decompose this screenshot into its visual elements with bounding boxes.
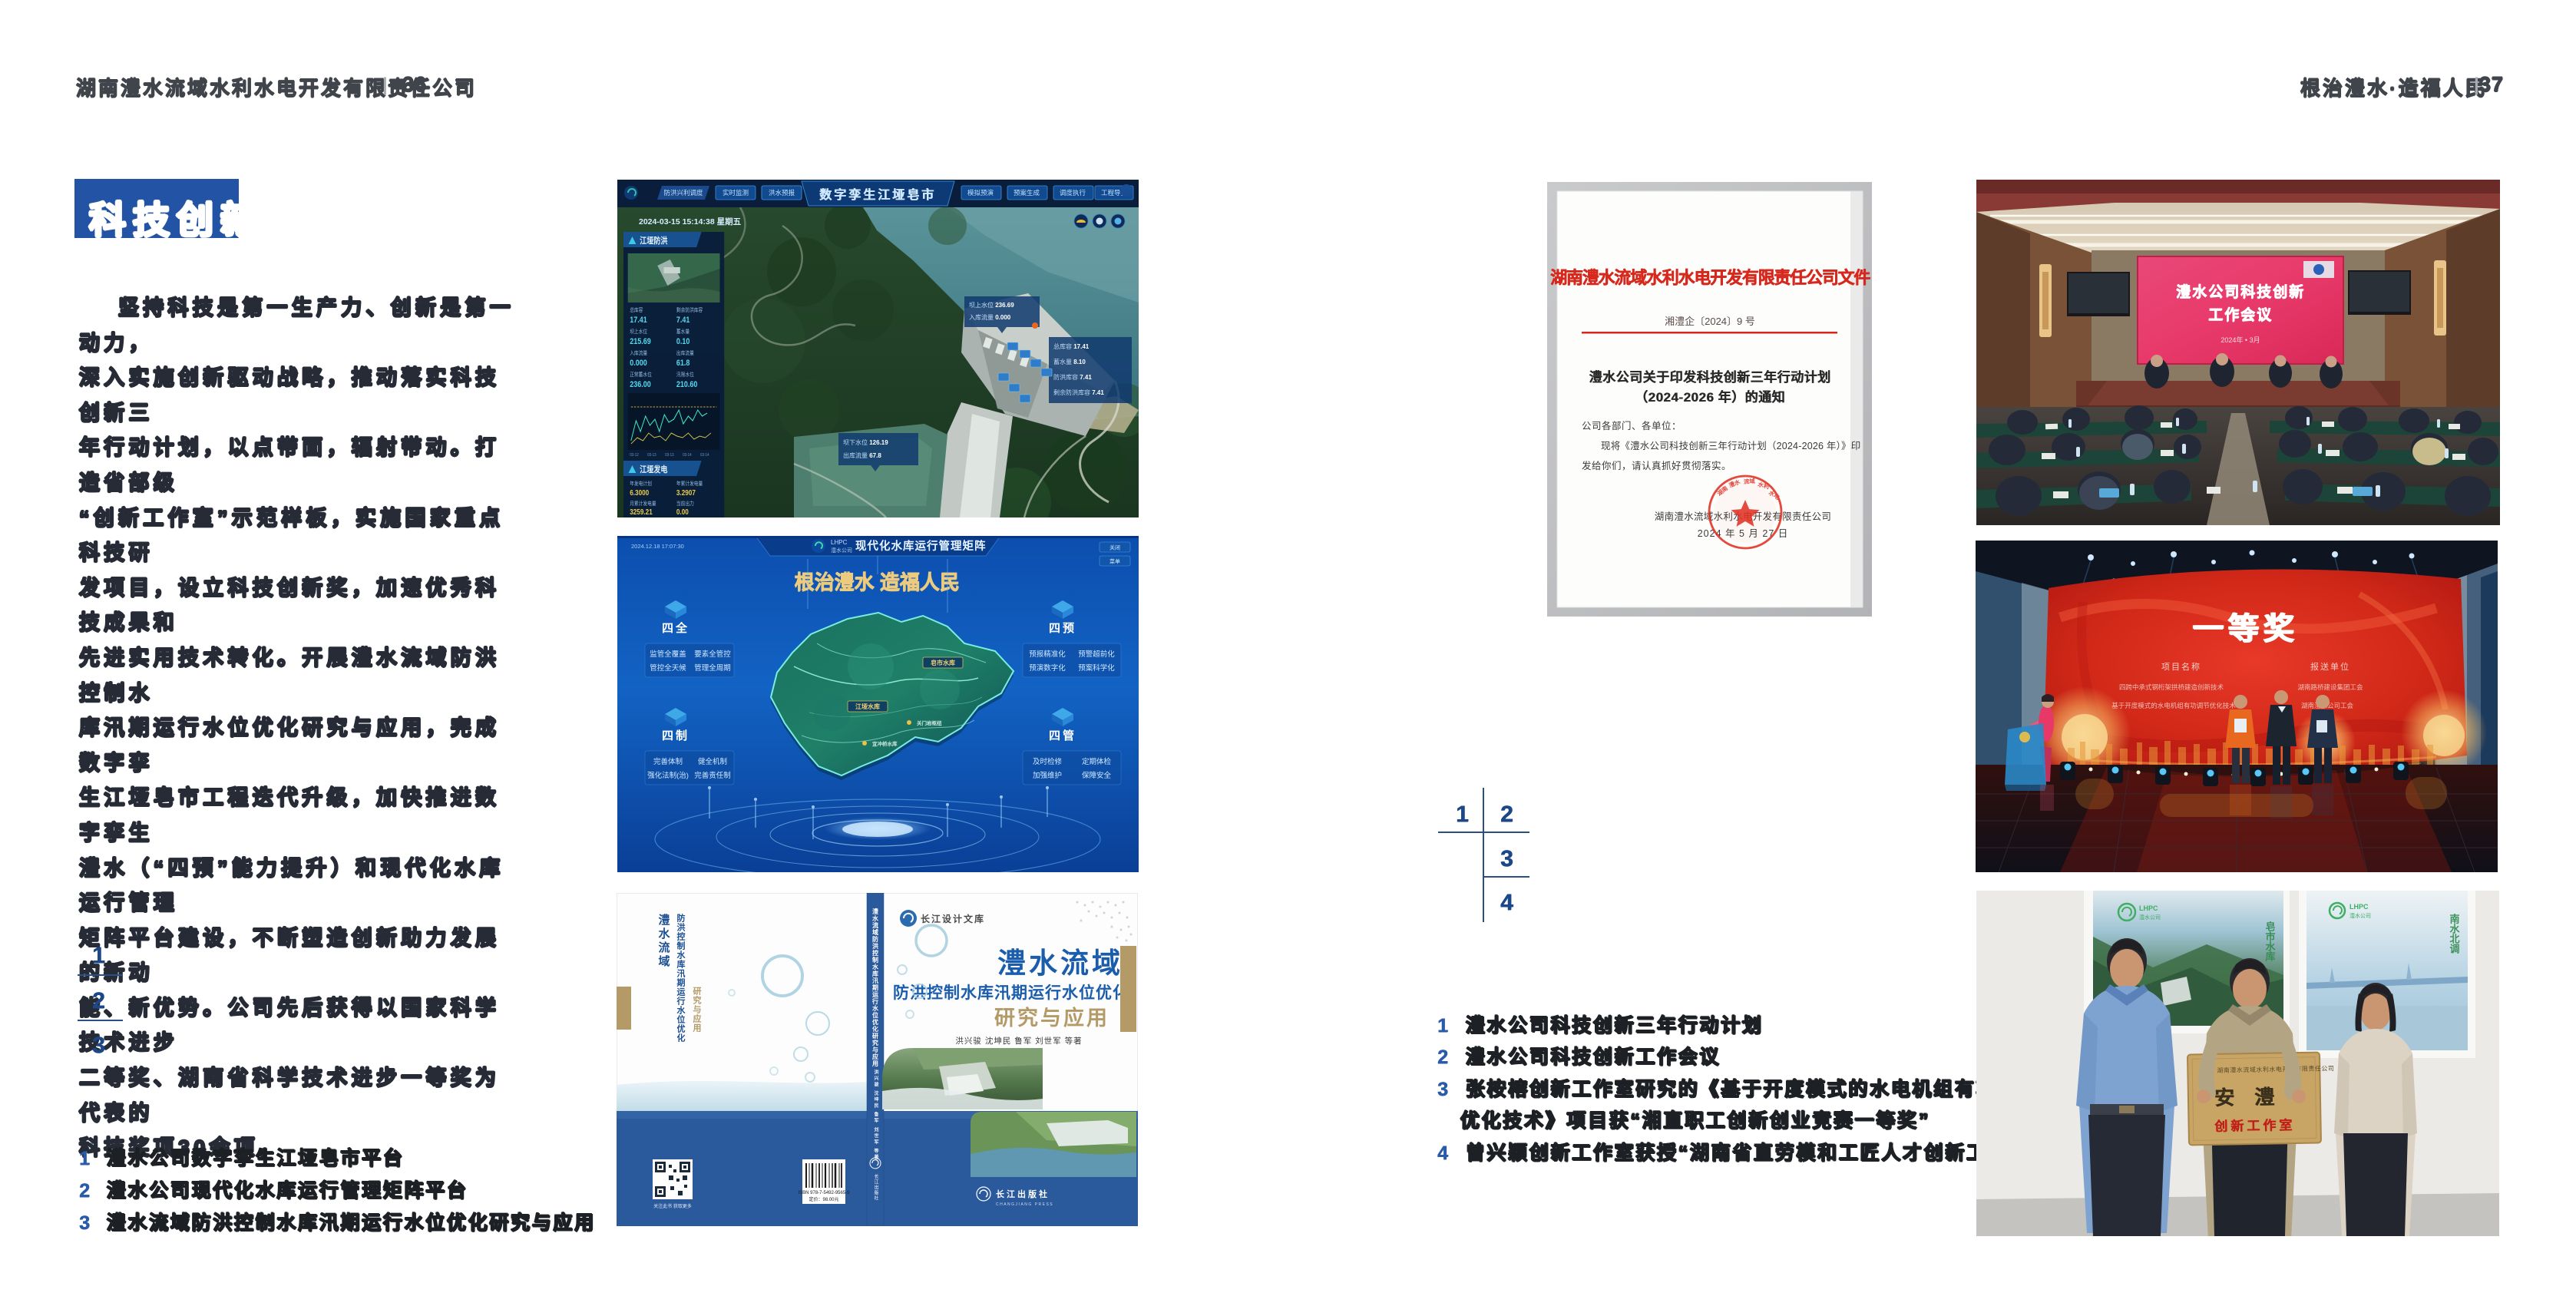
svg-text:03-13: 03-13 xyxy=(647,453,656,458)
svg-text:江垭水库: 江垭水库 xyxy=(855,703,880,710)
svg-text:研究与应用: 研究与应用 xyxy=(994,1006,1109,1030)
svg-text:预警超前化: 预警超前化 xyxy=(1078,650,1115,659)
svg-text:预演数字化: 预演数字化 xyxy=(1029,663,1066,673)
svg-text:蓄水量: 蓄水量 xyxy=(676,327,690,335)
svg-text:预案生成: 预案生成 xyxy=(1014,189,1040,197)
svg-text:澧水公司: 澧水公司 xyxy=(831,547,852,554)
svg-text:防洪控制水库汛期运行水位优化: 防洪控制水库汛期运行水位优化 xyxy=(893,984,1129,1002)
svg-text:坝上水位: 坝上水位 xyxy=(630,327,647,335)
svg-text:皂市水库: 皂市水库 xyxy=(2264,921,2276,962)
svg-text:防洪库容 7.41: 防洪库容 7.41 xyxy=(1053,373,1092,381)
svg-text:工作会议: 工作会议 xyxy=(2208,306,2273,323)
svg-text:月累计发电量: 月累计发电量 xyxy=(630,499,656,507)
svg-text:定价：98.00元: 定价：98.00元 xyxy=(809,1196,838,1202)
svg-text:创新工作室: 创新工作室 xyxy=(2214,1117,2295,1134)
svg-text:防洪兴利调度: 防洪兴利调度 xyxy=(663,189,703,197)
svg-text:四管: 四管 xyxy=(1049,729,1076,742)
svg-text:及时检修: 及时检修 xyxy=(1033,757,1063,766)
svg-text:基于开度模式的水电机组有功调节优化技术: 基于开度模式的水电机组有功调节优化技术 xyxy=(2111,702,2236,709)
svg-text:坝下水位 126.19: 坝下水位 126.19 xyxy=(843,438,888,446)
svg-text:防洪控制水库汛期运行水位优化: 防洪控制水库汛期运行水位优化 xyxy=(676,913,686,1043)
svg-text:安澧: 安澧 xyxy=(2214,1085,2295,1109)
svg-text:LHPC: LHPC xyxy=(2349,903,2369,911)
svg-text:湖南澧水流域水利水电开发有限责任公司文件: 湖南澧水流域水利水电开发有限责任公司文件 xyxy=(1550,268,1870,287)
svg-text:四全: 四全 xyxy=(662,621,689,635)
svg-text:现代化水库运行管理矩阵: 现代化水库运行管理矩阵 xyxy=(855,539,987,553)
svg-text:出库流量 67.8: 出库流量 67.8 xyxy=(843,451,881,459)
svg-text:公司各部门、各单位：: 公司各部门、各单位： xyxy=(1582,420,1682,431)
svg-text:ISBN 978-7-5492-9565-9: ISBN 978-7-5492-9565-9 xyxy=(798,1191,850,1195)
svg-text:61.8: 61.8 xyxy=(676,359,690,368)
svg-text:实时监测: 实时监测 xyxy=(723,189,749,197)
svg-text:03-12: 03-12 xyxy=(630,453,639,458)
svg-text:0.10: 0.10 xyxy=(676,337,690,346)
svg-text:菜单: 菜单 xyxy=(1109,558,1120,565)
svg-text:健全机制: 健全机制 xyxy=(698,757,727,766)
svg-text:澧水公司科技创新: 澧水公司科技创新 xyxy=(2176,283,2305,300)
svg-text:LHPC: LHPC xyxy=(2139,904,2158,912)
svg-text:江垭防洪: 江垭防洪 xyxy=(640,235,667,246)
svg-text:澧水公司关于印发科技创新三年行动计划: 澧水公司关于印发科技创新三年行动计划 xyxy=(1589,369,1831,385)
svg-text:剩余防洪库容 7.41: 剩余防洪库容 7.41 xyxy=(1053,388,1104,396)
svg-text:定期体检: 定期体检 xyxy=(1082,757,1112,766)
svg-text:根治澧水 造福人民: 根治澧水 造福人民 xyxy=(794,570,959,593)
svg-text:215.69: 215.69 xyxy=(630,337,651,346)
svg-text:03-13: 03-13 xyxy=(665,453,674,458)
svg-text:关注此书 获取更多: 关注此书 获取更多 xyxy=(653,1203,692,1209)
svg-text:澧水流域: 澧水流域 xyxy=(997,947,1123,979)
svg-text:入库流量: 入库流量 xyxy=(630,349,647,356)
svg-text:入库流量 0.000: 入库流量 0.000 xyxy=(969,313,1011,321)
svg-text:湘澧企〔2024〕9 号: 湘澧企〔2024〕9 号 xyxy=(1665,316,1755,327)
svg-text:监管全覆盖: 监管全覆盖 xyxy=(650,650,686,659)
svg-text:保障安全: 保障安全 xyxy=(1082,771,1112,780)
svg-text:现将《澧水公司科技创新三年行动计划（2024-2026 年）: 现将《澧水公司科技创新三年行动计划（2024-2026 年）》印 xyxy=(1601,440,1860,451)
svg-text:2024年 • 3月: 2024年 • 3月 xyxy=(2221,336,2260,344)
svg-text:皂市水库: 皂市水库 xyxy=(931,659,955,666)
svg-text:湖南路桥建设集团工会: 湖南路桥建设集团工会 xyxy=(2297,683,2363,691)
svg-text:（2024-2026 年）的通知: （2024-2026 年）的通知 xyxy=(1635,389,1785,405)
svg-text:四预: 四预 xyxy=(1049,622,1076,635)
svg-text:关闭: 关闭 xyxy=(1109,544,1120,551)
svg-text:宜冲桥水库: 宜冲桥水库 xyxy=(872,740,898,747)
svg-text:江垭发电: 江垭发电 xyxy=(640,464,667,474)
svg-text:加强维护: 加强维护 xyxy=(1033,771,1062,780)
svg-text:预案科学化: 预案科学化 xyxy=(1078,663,1115,673)
svg-text:完善责任制: 完善责任制 xyxy=(694,771,731,780)
svg-text:模拟预演: 模拟预演 xyxy=(967,189,994,197)
svg-text:坝上水位 236.69: 坝上水位 236.69 xyxy=(969,301,1014,309)
svg-text:强化法制(治): 强化法制(治) xyxy=(647,771,689,780)
svg-text:数字孪生江垭皂市: 数字孪生江垭皂市 xyxy=(819,187,936,202)
svg-text:0.000: 0.000 xyxy=(630,359,647,368)
svg-text:剩余防洪库容: 剩余防洪库容 xyxy=(676,306,703,313)
svg-text:LHPC: LHPC xyxy=(831,539,848,546)
svg-text:研究与应用: 研究与应用 xyxy=(692,987,702,1033)
svg-text:洪兴骏 沈坤民 鲁军 刘世军 等著: 洪兴骏 沈坤民 鲁军 刘世军 等著 xyxy=(955,1036,1082,1046)
svg-text:长江出版社: 长江出版社 xyxy=(873,1173,878,1201)
svg-text:项目名称: 项目名称 xyxy=(2161,661,2201,672)
svg-text:6.3000: 6.3000 xyxy=(630,488,649,497)
svg-text:出库流量: 出库流量 xyxy=(676,349,694,356)
svg-text:四跨中承式钢桁架拱桥建造创新技术: 四跨中承式钢桁架拱桥建造创新技术 xyxy=(2119,683,2224,691)
svg-text:发给你们，请认真抓好贯彻落实。: 发给你们，请认真抓好贯彻落实。 xyxy=(1582,460,1731,471)
svg-text:完善体制: 完善体制 xyxy=(653,757,683,766)
svg-text:澧水流域防洪控制水库汛期运行水位优化研究与应用: 澧水流域防洪控制水库汛期运行水位优化研究与应用 xyxy=(871,908,879,1067)
svg-text:要素全管控: 要素全管控 xyxy=(694,650,731,659)
svg-text:澧水流域: 澧水流域 xyxy=(657,913,670,969)
svg-text:当前出力: 当前出力 xyxy=(676,499,694,507)
svg-text:四制: 四制 xyxy=(662,729,689,742)
svg-text:关门岩枢纽: 关门岩枢纽 xyxy=(917,719,942,726)
svg-text:南水北调: 南水北调 xyxy=(2449,913,2460,954)
svg-text:210.60: 210.60 xyxy=(676,380,698,389)
svg-text:年发电计划: 年发电计划 xyxy=(630,479,652,487)
svg-text:7.41: 7.41 xyxy=(676,316,690,325)
svg-text:蓄水量 8.10: 蓄水量 8.10 xyxy=(1053,358,1086,365)
svg-text:调度执行: 调度执行 xyxy=(1060,189,1086,197)
svg-text:236.00: 236.00 xyxy=(630,380,651,389)
svg-text:长江设计文库: 长江设计文库 xyxy=(921,913,985,924)
svg-text:管理全周期: 管理全周期 xyxy=(694,663,731,673)
svg-text:3259.21: 3259.21 xyxy=(630,508,653,516)
svg-text:报送单位: 报送单位 xyxy=(2310,661,2350,672)
svg-text:2024-03-15 15:14:38 星期五: 2024-03-15 15:14:38 星期五 xyxy=(639,217,742,226)
svg-text:17.41: 17.41 xyxy=(630,316,647,325)
svg-text:3.2907: 3.2907 xyxy=(676,488,696,497)
svg-text:长江出版社: 长江出版社 xyxy=(996,1189,1050,1199)
svg-text:澧水公司: 澧水公司 xyxy=(2139,914,2161,921)
svg-text:管控全天候: 管控全天候 xyxy=(650,663,686,673)
svg-text:汛限水位: 汛限水位 xyxy=(676,370,694,378)
svg-text:CHANGJIANG PRESS: CHANGJIANG PRESS xyxy=(996,1202,1053,1207)
svg-text:03-14: 03-14 xyxy=(683,453,692,458)
svg-text:一等奖: 一等奖 xyxy=(2193,612,2299,646)
svg-text:总库容 17.41: 总库容 17.41 xyxy=(1053,342,1090,350)
svg-text:03-14: 03-14 xyxy=(700,453,709,458)
svg-text:澧水公司: 澧水公司 xyxy=(2349,912,2371,919)
svg-text:2024.12.18 17:07:30: 2024.12.18 17:07:30 xyxy=(631,543,684,550)
svg-text:总库容: 总库容 xyxy=(630,306,643,313)
svg-text:洪水预报: 洪水预报 xyxy=(769,189,795,197)
svg-text:年累计发电量: 年累计发电量 xyxy=(676,479,703,487)
svg-text:0.00: 0.00 xyxy=(676,508,689,516)
svg-text:预报精准化: 预报精准化 xyxy=(1029,650,1066,659)
svg-text:正常蓄水位: 正常蓄水位 xyxy=(630,370,652,378)
